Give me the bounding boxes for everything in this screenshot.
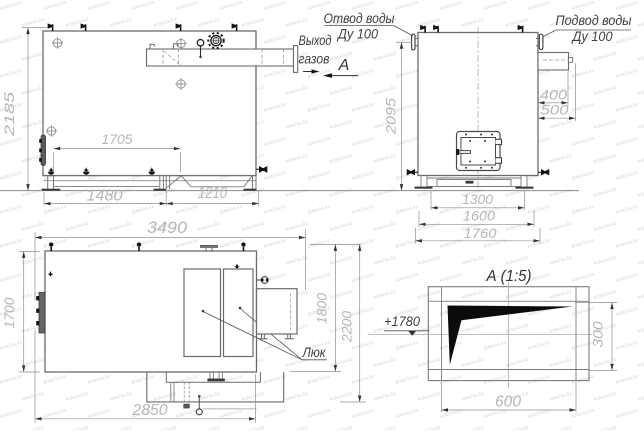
svg-text:Люк: Люк <box>302 344 327 360</box>
svg-text:1760: 1760 <box>464 225 497 241</box>
svg-text:400: 400 <box>540 87 567 103</box>
svg-text:1600: 1600 <box>463 208 495 224</box>
svg-text:Отвод воды: Отвод воды <box>324 10 396 26</box>
svg-text:2095: 2095 <box>383 98 399 135</box>
svg-text:1300: 1300 <box>462 191 493 207</box>
svg-text:1705: 1705 <box>102 131 133 147</box>
svg-text:Ду 100: Ду 100 <box>571 28 613 44</box>
svg-text:3490: 3490 <box>147 218 188 237</box>
svg-text:500: 500 <box>541 102 569 118</box>
svg-text:Подвод воды: Подвод воды <box>556 12 633 28</box>
svg-text:600: 600 <box>495 394 521 411</box>
svg-text:газов: газов <box>299 51 330 67</box>
svg-text:1700: 1700 <box>1 297 17 328</box>
svg-text:Выход: Выход <box>299 32 332 48</box>
svg-text:Ду 100: Ду 100 <box>336 26 378 42</box>
svg-text:А: А <box>338 57 350 74</box>
svg-text:1480: 1480 <box>87 188 123 205</box>
svg-text:1210: 1210 <box>198 185 227 202</box>
svg-text:2850: 2850 <box>131 402 167 419</box>
svg-text:1800: 1800 <box>314 293 330 324</box>
svg-text:2185: 2185 <box>1 92 17 138</box>
svg-text:+1780: +1780 <box>384 313 420 329</box>
svg-text:300: 300 <box>590 321 606 347</box>
svg-text:2200: 2200 <box>339 311 355 343</box>
